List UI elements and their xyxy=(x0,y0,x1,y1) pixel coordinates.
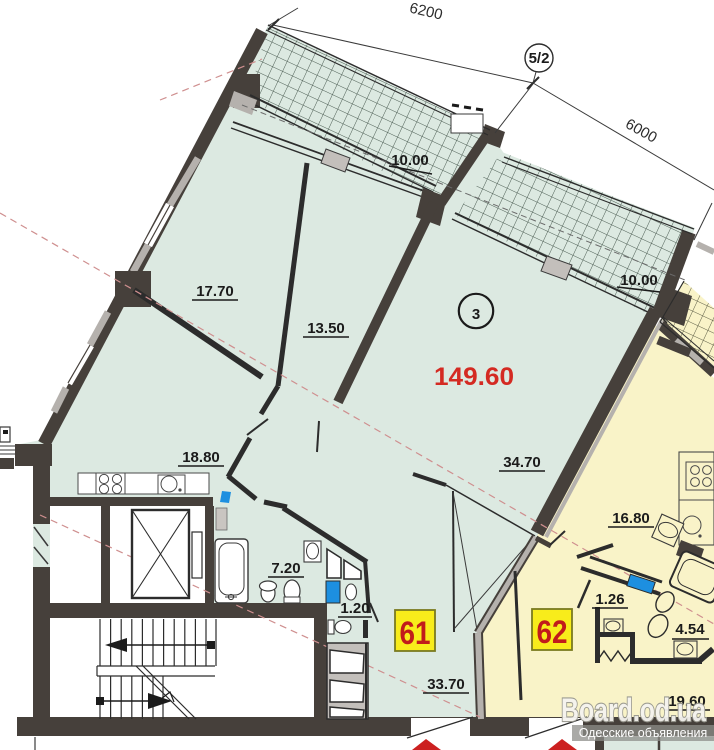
svg-text:1.20: 1.20 xyxy=(340,600,369,617)
svg-text:Одесские объявления: Одесские объявления xyxy=(579,726,708,740)
svg-text:17.70: 17.70 xyxy=(196,283,234,300)
svg-text:33.70: 33.70 xyxy=(427,676,465,693)
svg-text:1.26: 1.26 xyxy=(595,591,624,608)
svg-text:4.54: 4.54 xyxy=(675,621,705,638)
svg-text:16.80: 16.80 xyxy=(612,510,650,527)
svg-text:61: 61 xyxy=(400,615,431,651)
svg-text:Board.od.ua: Board.od.ua xyxy=(561,692,706,728)
svg-text:3: 3 xyxy=(472,306,480,323)
svg-text:34.70: 34.70 xyxy=(503,454,541,471)
svg-text:149.60: 149.60 xyxy=(434,363,514,391)
svg-text:13.50: 13.50 xyxy=(307,320,345,337)
svg-text:5/2: 5/2 xyxy=(529,50,550,67)
svg-text:7.20: 7.20 xyxy=(271,560,300,577)
svg-text:18.80: 18.80 xyxy=(182,449,220,466)
svg-text:62: 62 xyxy=(537,614,568,650)
svg-text:10.00: 10.00 xyxy=(391,152,429,169)
svg-text:10.00: 10.00 xyxy=(620,272,658,289)
